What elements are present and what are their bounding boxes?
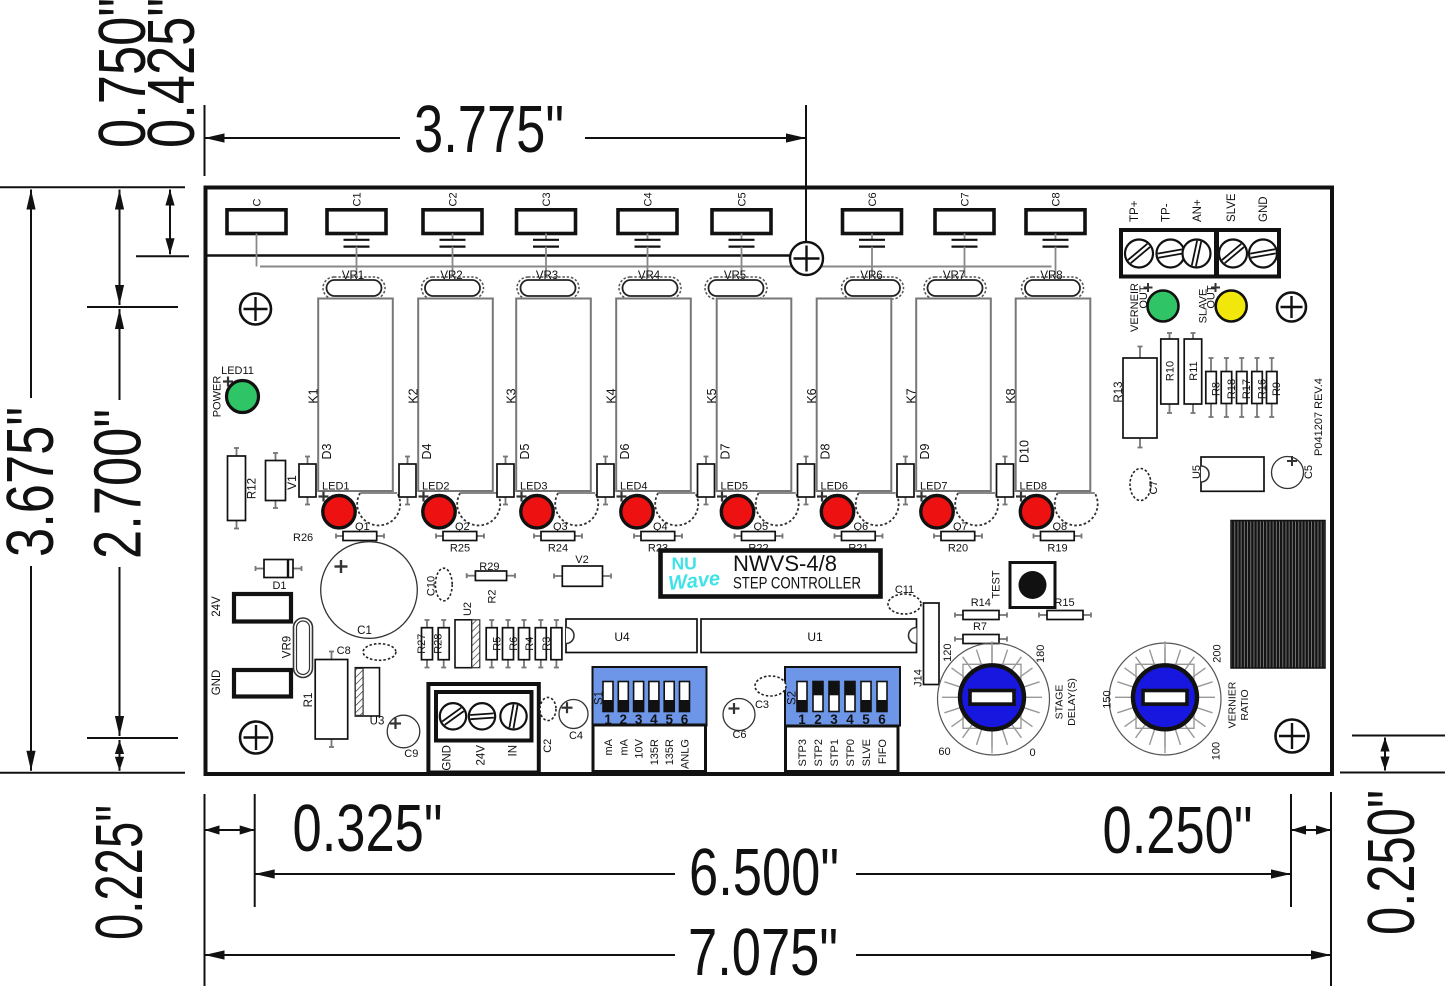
svg-text:U5: U5 xyxy=(1191,465,1203,479)
svg-text:D1: D1 xyxy=(272,580,286,592)
svg-text:LED5: LED5 xyxy=(721,481,749,493)
svg-text:LED7: LED7 xyxy=(920,481,948,493)
svg-text:C3: C3 xyxy=(541,192,553,206)
svg-text:C7: C7 xyxy=(1148,480,1160,494)
svg-text:LED4: LED4 xyxy=(620,481,648,493)
svg-text:24V: 24V xyxy=(211,596,223,617)
svg-text:mA: mA xyxy=(603,738,615,755)
svg-text:GND: GND xyxy=(442,745,454,771)
svg-text:IN: IN xyxy=(508,745,520,757)
svg-text:C4: C4 xyxy=(569,730,583,742)
svg-text:R27: R27 xyxy=(416,634,428,654)
svg-text:D5: D5 xyxy=(518,443,532,459)
svg-text:STP0: STP0 xyxy=(845,739,857,767)
svg-text:C1: C1 xyxy=(352,192,364,206)
svg-text:6.500": 6.500" xyxy=(689,835,839,910)
svg-text:DELAY(S): DELAY(S) xyxy=(1066,678,1078,726)
svg-text:150: 150 xyxy=(1102,690,1114,708)
svg-text:R28: R28 xyxy=(433,634,445,654)
svg-text:C7: C7 xyxy=(960,192,972,206)
svg-text:R9: R9 xyxy=(1271,382,1283,396)
svg-text:R20: R20 xyxy=(948,543,968,555)
svg-text:LED3: LED3 xyxy=(520,481,548,493)
svg-text:VR6: VR6 xyxy=(860,270,882,282)
svg-text:2.700": 2.700" xyxy=(81,409,156,559)
svg-text:VR7: VR7 xyxy=(943,270,965,282)
svg-text:K5: K5 xyxy=(705,388,719,403)
svg-text:C2: C2 xyxy=(542,739,554,753)
svg-text:R26: R26 xyxy=(293,532,313,544)
svg-text:100: 100 xyxy=(1211,742,1223,760)
svg-text:mA: mA xyxy=(618,738,630,755)
svg-text:C2: C2 xyxy=(448,192,460,206)
svg-text:C4: C4 xyxy=(643,192,655,206)
svg-text:K2: K2 xyxy=(407,388,421,403)
svg-text:24V: 24V xyxy=(476,745,488,766)
svg-text:C9: C9 xyxy=(404,748,418,760)
svg-text:C6: C6 xyxy=(732,729,746,741)
svg-text:LED6: LED6 xyxy=(821,481,849,493)
svg-text:135R: 135R xyxy=(664,739,676,765)
svg-text:D4: D4 xyxy=(420,443,434,459)
svg-text:STP2: STP2 xyxy=(813,739,825,767)
svg-text:K6: K6 xyxy=(805,388,819,403)
svg-text:C5: C5 xyxy=(1303,465,1315,479)
svg-text:LED2: LED2 xyxy=(422,481,450,493)
svg-text:3.775": 3.775" xyxy=(414,92,564,167)
svg-text:0: 0 xyxy=(1029,747,1035,759)
svg-text:VR2: VR2 xyxy=(440,270,462,282)
svg-text:LED11: LED11 xyxy=(221,365,254,377)
svg-text:V1: V1 xyxy=(285,475,299,490)
svg-text:R4: R4 xyxy=(524,637,536,651)
svg-text:K8: K8 xyxy=(1004,388,1018,403)
svg-text:R29: R29 xyxy=(479,561,499,573)
svg-text:P041207 REV.4: P041207 REV.4 xyxy=(1313,378,1325,456)
svg-text:TEST: TEST xyxy=(991,570,1003,598)
svg-text:STP1: STP1 xyxy=(829,739,841,767)
svg-text:0.425": 0.425" xyxy=(134,0,209,148)
svg-text:0.225": 0.225" xyxy=(82,805,157,940)
svg-text:R19: R19 xyxy=(1047,543,1067,555)
svg-text:120: 120 xyxy=(942,644,954,662)
svg-text:LED1: LED1 xyxy=(322,481,350,493)
svg-text:GND: GND xyxy=(211,670,223,696)
svg-text:VR3: VR3 xyxy=(536,270,558,282)
svg-text:R2: R2 xyxy=(487,589,499,603)
svg-text:RATIO: RATIO xyxy=(1239,689,1251,720)
svg-text:C11: C11 xyxy=(895,584,914,596)
svg-text:R1: R1 xyxy=(303,693,315,708)
svg-text:C8: C8 xyxy=(1051,192,1063,206)
svg-text:C8: C8 xyxy=(337,645,351,657)
svg-text:FIFO: FIFO xyxy=(877,739,889,764)
svg-text:STP3: STP3 xyxy=(797,739,809,767)
svg-text:10V: 10V xyxy=(634,738,646,758)
svg-text:VR5: VR5 xyxy=(724,270,746,282)
svg-text:R25: R25 xyxy=(450,543,470,555)
svg-text:R7: R7 xyxy=(973,621,987,633)
svg-text:K7: K7 xyxy=(905,388,919,403)
svg-text:3.675": 3.675" xyxy=(0,407,68,557)
svg-text:135R: 135R xyxy=(649,739,661,765)
svg-text:D9: D9 xyxy=(918,443,932,459)
svg-text:LED8: LED8 xyxy=(1020,481,1048,493)
svg-text:R11: R11 xyxy=(1188,361,1200,380)
svg-text:SLVE: SLVE xyxy=(861,739,873,766)
svg-text:R15: R15 xyxy=(1054,597,1074,609)
svg-text:K4: K4 xyxy=(605,388,619,403)
svg-text:POWER: POWER xyxy=(212,376,224,418)
svg-text:K3: K3 xyxy=(505,388,519,403)
svg-text:STAGE: STAGE xyxy=(1053,685,1065,720)
svg-text:D8: D8 xyxy=(818,443,832,459)
svg-text:R24: R24 xyxy=(548,543,568,555)
svg-text:ANLG: ANLG xyxy=(680,739,692,769)
svg-text:VR1: VR1 xyxy=(342,270,364,282)
svg-text:R14: R14 xyxy=(971,597,991,609)
svg-text:GND: GND xyxy=(1258,196,1270,222)
svg-text:0.325": 0.325" xyxy=(293,791,443,866)
svg-text:VERNIER: VERNIER xyxy=(1226,681,1238,728)
svg-text:U3: U3 xyxy=(370,716,385,728)
svg-text:J14: J14 xyxy=(913,669,925,687)
svg-text:D10: D10 xyxy=(1017,440,1031,463)
svg-text:200: 200 xyxy=(1212,644,1224,662)
svg-text:VR9: VR9 xyxy=(282,636,294,658)
svg-text:AN+: AN+ xyxy=(1192,199,1204,222)
svg-text:S1: S1 xyxy=(594,691,606,705)
svg-text:R12: R12 xyxy=(247,478,259,499)
svg-text:C5: C5 xyxy=(737,192,749,206)
svg-text:0.250": 0.250" xyxy=(1103,793,1253,868)
svg-text:C6: C6 xyxy=(867,192,879,206)
svg-text:R10: R10 xyxy=(1165,361,1177,381)
svg-text:C10: C10 xyxy=(426,576,438,596)
svg-text:7.075": 7.075" xyxy=(688,915,838,986)
svg-text:STEP CONTROLLER: STEP CONTROLLER xyxy=(733,574,861,593)
svg-text:R13: R13 xyxy=(1113,381,1125,402)
svg-text:V2: V2 xyxy=(575,554,588,566)
svg-text:D3: D3 xyxy=(320,443,334,459)
svg-text:VR8: VR8 xyxy=(1040,270,1062,282)
svg-text:SLVE: SLVE xyxy=(1226,193,1238,222)
svg-text:U4: U4 xyxy=(614,630,630,644)
svg-text:C3: C3 xyxy=(755,699,769,711)
svg-text:C1: C1 xyxy=(357,625,372,637)
svg-text:U1: U1 xyxy=(807,630,823,644)
svg-text:S2: S2 xyxy=(787,691,799,705)
svg-text:TP+: TP+ xyxy=(1129,200,1141,222)
svg-text:C: C xyxy=(252,199,264,207)
svg-text:D7: D7 xyxy=(718,443,732,459)
svg-text:K1: K1 xyxy=(307,388,321,403)
svg-text:60: 60 xyxy=(938,746,950,758)
svg-text:180: 180 xyxy=(1035,645,1047,663)
svg-text:VR4: VR4 xyxy=(638,270,661,282)
svg-text:0.250": 0.250" xyxy=(1354,790,1429,935)
svg-text:TP-: TP- xyxy=(1161,203,1173,222)
svg-text:NWVS-4/8: NWVS-4/8 xyxy=(733,551,837,576)
svg-text:D6: D6 xyxy=(618,443,632,459)
svg-text:U2: U2 xyxy=(462,602,474,616)
